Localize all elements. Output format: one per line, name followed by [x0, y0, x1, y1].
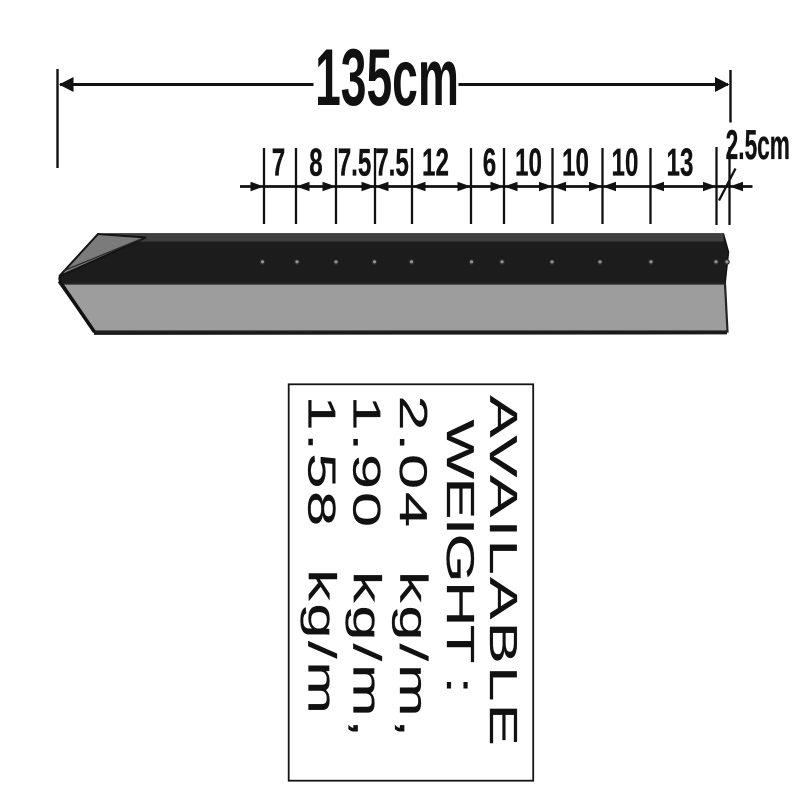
svg-text:7: 7 [272, 141, 285, 184]
svg-text:WEIGHT :: WEIGHT : [438, 420, 482, 693]
svg-text:6: 6 [483, 141, 496, 184]
svg-text:12: 12 [422, 141, 449, 184]
svg-text:AVAILABLE: AVAILABLE [481, 396, 525, 749]
svg-text:8: 8 [309, 141, 322, 184]
svg-text:135cm: 135cm [315, 33, 459, 123]
svg-text:2.5cm: 2.5cm [726, 121, 790, 168]
svg-text:10: 10 [562, 141, 589, 184]
svg-text:13: 13 [667, 141, 694, 184]
svg-text:1.58 kg/m: 1.58 kg/m [300, 396, 344, 717]
svg-text:10: 10 [515, 141, 542, 184]
svg-text:7.5: 7.5 [375, 141, 409, 184]
svg-text:2.04 kg/m,: 2.04 kg/m, [391, 396, 435, 741]
svg-text:10: 10 [612, 141, 639, 184]
svg-text:1.90 kg/m,: 1.90 kg/m, [345, 396, 389, 741]
svg-text:7.5: 7.5 [338, 141, 372, 184]
